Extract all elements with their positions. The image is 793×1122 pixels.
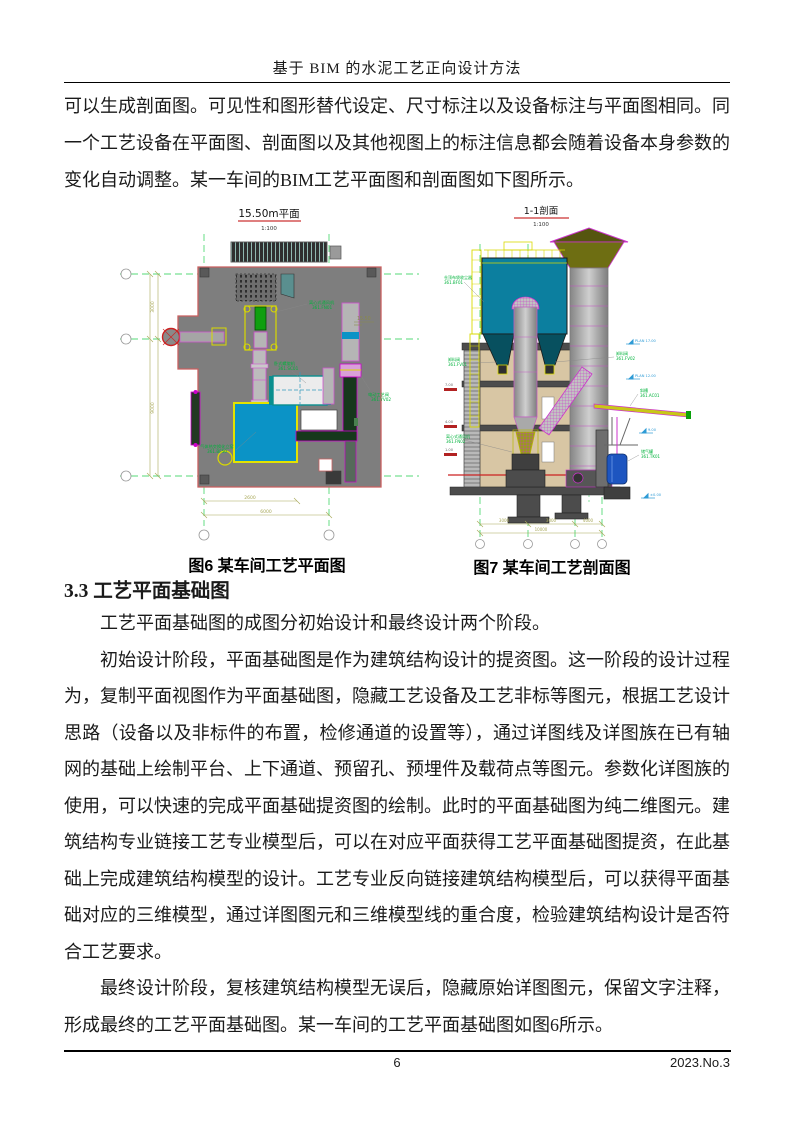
dim-v1: 3000 xyxy=(150,301,156,313)
screw-conveyor-box xyxy=(269,372,331,409)
page-content: 可以生成剖面图。可见性和图形替代设定、尺寸标注以及设备标注与平面图相同。同一个工… xyxy=(64,88,730,1043)
figure7-caption: 图7 某车间工艺剖面图 xyxy=(402,554,702,578)
svg-text:15.50: 15.50 xyxy=(357,316,371,322)
figure6-caption: 图6 某车间工艺平面图 xyxy=(107,552,427,576)
running-head-title: 基于 BIM 的水泥工艺正向设计方法 xyxy=(64,57,730,78)
dim-h2: 6000 xyxy=(260,509,272,515)
svg-text:±0.00: ±0.00 xyxy=(650,493,662,497)
plan-view-title: 15.50m平面 xyxy=(238,208,299,220)
wall-opening-2 xyxy=(542,442,554,462)
svg-text:361.SC01: 361.SC01 xyxy=(278,366,299,371)
paragraph-intro: 工艺平面基础图的成图分初始设计和最终设计两个阶段。 xyxy=(64,605,730,642)
small-opening xyxy=(319,459,332,471)
right-column xyxy=(596,430,608,487)
air-chute-conveyor xyxy=(594,404,691,454)
figure6-plan-view: 15.50m平面 1:100 xyxy=(114,204,434,555)
plan-view-scale: 1:100 xyxy=(261,226,277,232)
svg-text:10000: 10000 xyxy=(535,527,548,532)
footer-rule xyxy=(64,1050,731,1052)
stair-ramp xyxy=(281,274,294,298)
floor-opening xyxy=(301,410,337,430)
air-tank xyxy=(604,454,630,499)
svg-text:PLAN 17.00: PLAN 17.00 xyxy=(635,339,657,343)
plan-drawing: 15.50m平面 1:100 xyxy=(114,204,434,550)
svg-text:7.00: 7.00 xyxy=(445,383,454,387)
section-heading: 3.3 工艺平面基础图 xyxy=(64,578,730,605)
issue-number: 2023.No.3 xyxy=(64,1055,730,1070)
paragraph-final-design: 最终设计阶段，复核建筑结构模型无误后，隐藏原始详图图元，保留文字注释，形成最终的… xyxy=(64,970,730,1043)
svg-text:4000: 4000 xyxy=(583,518,594,523)
stair-tower xyxy=(464,350,480,487)
svg-text:361.TK01: 361.TK01 xyxy=(641,454,661,459)
figures-row: 15.50m平面 1:100 xyxy=(64,202,730,574)
svg-text:4.00: 4.00 xyxy=(445,420,454,424)
svg-text:361.AC01: 361.AC01 xyxy=(640,393,660,398)
svg-text:361.YV02: 361.YV02 xyxy=(371,397,391,402)
svg-text:PLAN 12.00: PLAN 12.00 xyxy=(635,374,657,378)
hatched-opening xyxy=(236,274,276,301)
section-drawing: 1-1剖面 1:100 xyxy=(442,202,740,554)
paragraph-continuation: 可以生成剖面图。可见性和图形替代设定、尺寸标注以及设备标注与平面图相同。同一个工… xyxy=(64,88,730,199)
elevation-flags: PLAN 17.00 PLAN 12.00 9.00 ±0.00 xyxy=(626,339,662,498)
svg-text:361.BF01: 361.BF01 xyxy=(444,280,463,285)
left-elevation-marks: 7.00 4.00 1.00 xyxy=(444,383,457,456)
platform-tab xyxy=(330,246,341,259)
kiln-equipment-box xyxy=(234,403,297,462)
dimension-lines-bottom xyxy=(201,498,332,518)
svg-text:361.BF50: 361.BF50 xyxy=(207,449,227,454)
header-rule xyxy=(64,82,730,83)
section-view-title: 1-1剖面 xyxy=(524,205,559,217)
svg-text:3000: 3000 xyxy=(546,518,557,523)
dim-h1: 2600 xyxy=(244,495,256,501)
stair-strip xyxy=(231,242,327,262)
paragraph-initial-design: 初始设计阶段，平面基础图是作为建筑结构设计的提资图。这一阶段的设计过程为，复制平… xyxy=(64,642,730,971)
section-view-scale: 1:100 xyxy=(533,222,549,228)
dim-v2: 9000 xyxy=(150,402,156,414)
svg-text:361.FN02: 361.FN02 xyxy=(446,439,466,444)
svg-text:361.FN01: 361.FN01 xyxy=(312,305,333,310)
svg-text:9.00: 9.00 xyxy=(648,428,657,432)
figure7-section-view: 1-1剖面 1:100 xyxy=(442,202,740,559)
paper-page: 基于 BIM 的水泥工艺正向设计方法 可以生成剖面图。可见性和图形替代设定、尺寸… xyxy=(0,0,793,1122)
svg-text:3000: 3000 xyxy=(499,518,510,523)
svg-text:1.00: 1.00 xyxy=(445,448,454,452)
grid-bubbles xyxy=(476,540,607,549)
svg-text:361.FV01: 361.FV01 xyxy=(448,362,467,367)
svg-text:361.FV02: 361.FV02 xyxy=(616,356,635,361)
